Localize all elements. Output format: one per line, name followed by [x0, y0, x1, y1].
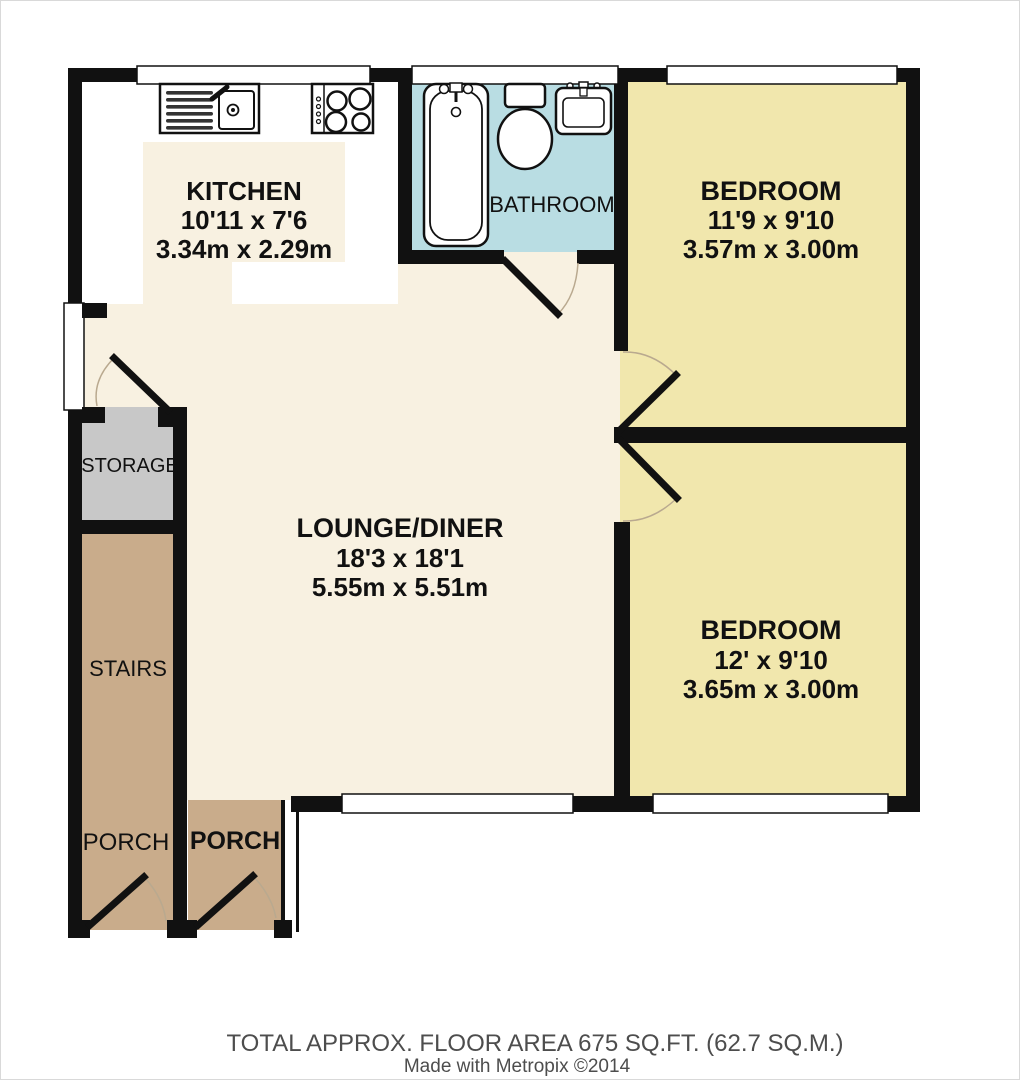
hob-burner — [326, 112, 346, 132]
toilet-icon — [498, 84, 552, 169]
kitchen-label: KITCHEN — [186, 176, 302, 207]
porch-right-label: PORCH — [190, 827, 280, 856]
wall-center-vertical — [614, 68, 628, 351]
wall-column-divider — [173, 407, 187, 938]
lounge-imperial-dims: 18'3 x 18'1 — [336, 543, 464, 574]
bath-mixer — [450, 83, 462, 92]
bath-tap-left — [440, 85, 449, 94]
drainer-bar — [166, 98, 213, 102]
wall-bedroom2-bottom-right — [888, 796, 920, 812]
sink-drain-inner — [231, 108, 235, 112]
floorplan-drawing — [0, 0, 1020, 1080]
hob-knob — [317, 105, 321, 109]
hob-icon — [312, 84, 373, 133]
wall-left — [68, 68, 82, 938]
bedroom2-label: BEDROOM — [701, 615, 842, 646]
window-kitchen — [137, 66, 370, 84]
toilet-cistern — [505, 84, 545, 107]
window-lounge — [342, 794, 573, 813]
total-floor-area-text: TOTAL APPROX. FLOOR AREA 675 SQ.FT. (62.… — [226, 1030, 843, 1058]
hob-burner — [350, 89, 371, 110]
drainer-bar — [166, 91, 213, 95]
basin-icon — [556, 82, 611, 134]
storage-label: STORAGE — [81, 455, 178, 478]
window-left-wall — [64, 303, 84, 410]
wall-kitchen-bathroom — [398, 82, 412, 264]
bedroom2-metric-dims: 3.65m x 3.00m — [683, 674, 859, 705]
kitchen-opening — [143, 262, 232, 304]
bathroom-label: BATHROOM — [489, 192, 614, 218]
window-bedroom1 — [667, 66, 897, 84]
drainer-bar — [166, 126, 213, 130]
bath-tap-right — [464, 85, 473, 94]
hob-burner — [353, 114, 370, 131]
wall-stub-window-top — [82, 303, 107, 318]
bedroom1-metric-dims: 3.57m x 3.00m — [683, 234, 859, 265]
wall-porch-bottom-mid — [167, 920, 197, 938]
floorplan-page: KITCHEN 10'11 x 7'6 3.34m x 2.29m BATHRO… — [0, 0, 1020, 1080]
basin-mixer-base — [580, 88, 587, 96]
hob-knob — [317, 112, 321, 116]
wall-storage-stairs — [82, 520, 173, 534]
toilet-bowl — [498, 109, 552, 169]
porch-right-floor — [188, 800, 282, 930]
hob-knob — [317, 120, 321, 124]
exterior-edge-line — [296, 806, 299, 932]
wall-porch-bottom-right — [274, 920, 292, 938]
metropix-credit-text: Made with Metropix ©2014 — [404, 1056, 630, 1078]
hob-knob — [317, 97, 321, 101]
wall-porch-bottom-left — [68, 920, 90, 938]
bedroom2-imperial-dims: 12' x 9'10 — [714, 645, 828, 676]
lounge-metric-dims: 5.55m x 5.51m — [312, 572, 488, 603]
bedroom1-label: BEDROOM — [701, 176, 842, 207]
wall-stub-storage-left — [82, 407, 105, 423]
kitchen-metric-dims: 3.34m x 2.29m — [156, 234, 332, 265]
wall-lounge-bottom-right — [573, 796, 620, 812]
stairs-porch-floor — [82, 522, 173, 930]
porch-left-label: PORCH — [83, 829, 170, 857]
stairs-label: STAIRS — [89, 656, 167, 682]
wall-bathroom-bottom-right — [577, 250, 616, 264]
drainer-bar — [166, 112, 213, 116]
drainer-bar — [166, 119, 213, 123]
window-bedroom2 — [653, 794, 888, 813]
hob-burner — [328, 92, 347, 111]
lounge-label: LOUNGE/DINER — [296, 513, 503, 544]
wall-between-bedrooms — [614, 427, 920, 443]
wall-bedroom2-bottom-left — [620, 796, 653, 812]
bath-outer — [424, 84, 488, 246]
wall-bathroom-bottom-left — [412, 250, 504, 264]
bedroom1-imperial-dims: 11'9 x 9'10 — [708, 205, 835, 236]
wall-porch-right-thin — [281, 800, 285, 922]
bathtub-icon — [424, 83, 488, 246]
wall-bedroom2-left — [614, 522, 630, 812]
kitchen-sink-icon — [160, 84, 259, 133]
sink-faucet-tip — [225, 85, 230, 90]
kitchen-imperial-dims: 10'11 x 7'6 — [181, 205, 308, 236]
drainer-bar — [166, 105, 213, 109]
